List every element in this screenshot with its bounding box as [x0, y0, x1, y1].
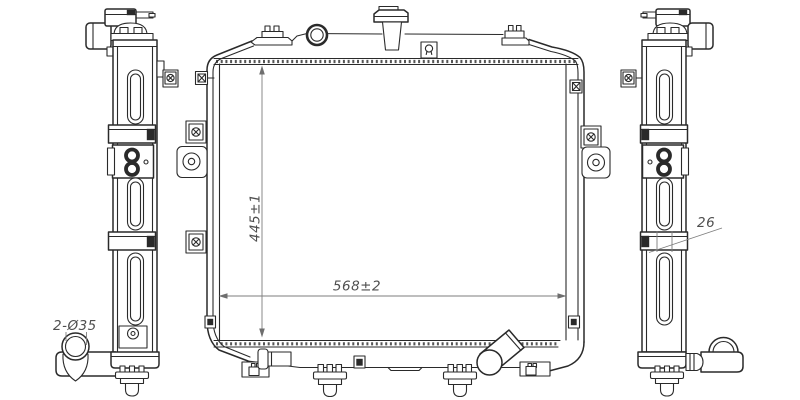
left-grommet-mount	[177, 147, 207, 178]
radiator-engineering-drawing: 2-Ø35	[0, 0, 800, 400]
left-column-mount-pad	[163, 70, 178, 87]
left-oval-slot-2	[128, 178, 144, 230]
right-outlet-elbow	[686, 338, 743, 373]
top-tank	[251, 7, 529, 59]
dimension-core-width: 568±2	[219, 279, 567, 299]
right-oval-slot-3	[657, 253, 673, 325]
dimension-core-height: 445±1	[248, 66, 265, 338]
filler-neck	[374, 7, 408, 51]
dimension-label-height: 445±1	[248, 194, 264, 242]
left-outlet-elbow	[56, 333, 116, 381]
right-side-view: 26	[621, 9, 743, 396]
bottom-clip	[354, 356, 365, 368]
left-oval-slot-1	[128, 70, 144, 124]
drawing-canvas: 2-Ø35	[0, 0, 800, 400]
angled-outlet-pipe	[477, 330, 524, 375]
right-drain-plug	[638, 352, 686, 396]
left-bottom-bracket	[119, 326, 147, 348]
right-oval-slot-1	[657, 70, 673, 124]
mounting-foot-1	[314, 365, 347, 397]
left-edge-mounts	[177, 72, 216, 329]
tank-side-walls	[207, 40, 584, 343]
dimension-label-outlet: 2-Ø35	[53, 318, 97, 334]
left-clamp-band-2	[109, 232, 156, 250]
right-hose-block	[643, 145, 689, 178]
dimension-label-clamp: 26	[697, 215, 715, 231]
right-inlet-stub	[684, 23, 713, 56]
dimension-label-width: 568±2	[333, 279, 381, 295]
cap-opening-ring	[307, 25, 327, 45]
right-edge-mounts	[569, 80, 611, 328]
left-clamp-band-1	[109, 125, 156, 143]
right-clamp-band-1	[641, 125, 688, 143]
left-hose-block	[108, 145, 154, 178]
left-filler-cap	[105, 9, 155, 41]
left-drain-plug	[111, 352, 159, 396]
top-right-bracket	[502, 26, 529, 46]
top-clip	[421, 42, 437, 58]
right-column-mount-pad	[621, 70, 642, 87]
right-grommet-mount	[582, 147, 610, 178]
right-filler-cap	[641, 9, 690, 41]
right-oval-slot-2	[657, 178, 673, 230]
left-side-view: 2-Ø35	[53, 9, 178, 396]
mounting-foot-2	[444, 365, 477, 397]
left-oval-slot-3	[128, 253, 144, 325]
radiator-core	[214, 59, 578, 348]
bottom-nipple-fitting	[258, 349, 291, 369]
front-view: 445±1 568±2	[177, 7, 610, 397]
bottom-right-bracket	[520, 362, 550, 376]
